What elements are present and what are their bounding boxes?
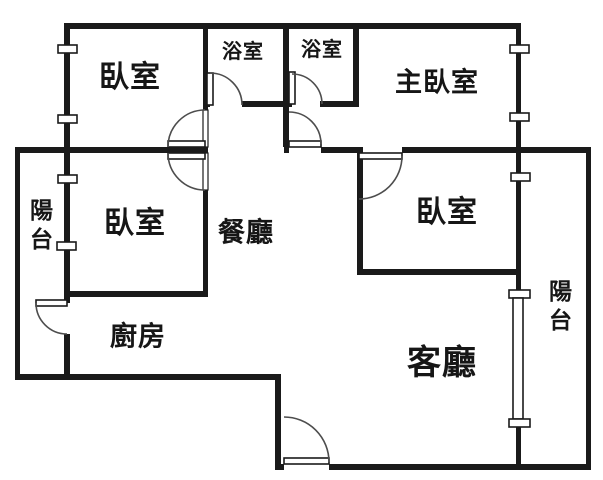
- wall-bottom-b: [329, 464, 591, 470]
- door-leaf-master-bedroom: [289, 141, 321, 147]
- floor-plan-drawing: [0, 0, 603, 480]
- door-arc-entrance: [284, 417, 329, 462]
- window-marker: [57, 242, 76, 250]
- wall-left-mid-lower: [64, 334, 70, 380]
- wall-main-mid-c: [402, 147, 591, 153]
- door-arc-master-bedroom: [289, 112, 321, 144]
- room-label-master-bedroom: 主臥室: [395, 70, 479, 97]
- wall-top: [65, 23, 521, 29]
- wall-bedroom3-bottom: [357, 269, 521, 275]
- wall-main-mid-a: [284, 147, 289, 153]
- wall-bottom-a: [275, 464, 284, 470]
- door-leaf-bathroom-left: [207, 73, 213, 105]
- door-leaf-entrance: [284, 458, 329, 464]
- wall-left-upper: [64, 23, 70, 153]
- room-label-bedroom-mid-left: 臥室: [104, 209, 166, 239]
- doors: [36, 72, 402, 464]
- room-label-balcony-right: 陽台: [547, 279, 570, 337]
- room-label-dining-room: 餐廳: [218, 220, 274, 247]
- room-label-balcony-left: 陽台: [28, 198, 51, 256]
- wall-kitchen-bottom: [15, 374, 281, 380]
- wall-bathroom2-east: [353, 23, 359, 107]
- door-arc-kitchen-balcony: [36, 303, 67, 334]
- wall-step: [275, 374, 281, 470]
- window-marker: [510, 113, 529, 121]
- wall-bathroom1-bottom-b: [242, 101, 289, 107]
- window-marker: [58, 45, 77, 53]
- wall-bathroom-divider: [283, 23, 289, 147]
- room-label-living-room: 客廳: [407, 346, 477, 380]
- floor-plan: 臥室 浴室 浴室 主臥室 臥室 餐廳 臥室 廚房 客廳 陽台 陽台: [0, 0, 603, 480]
- wall-main-mid-b: [321, 147, 359, 153]
- window-marker: [58, 175, 77, 183]
- door-leaf-bathroom-right: [289, 72, 295, 104]
- room-label-bedroom-top-left: 臥室: [99, 63, 161, 93]
- room-label-bedroom-right: 臥室: [416, 198, 478, 228]
- door-leaf-bedroom-mid-left: [168, 153, 205, 159]
- wall-divider-left: [15, 147, 208, 153]
- door-leaf-bedroom-top-left: [168, 141, 205, 147]
- wall-bedroom3-west: [357, 147, 363, 274]
- window-marker: [511, 173, 530, 181]
- window-marker: [510, 45, 529, 53]
- wall-bedroom2-bottom: [64, 291, 208, 297]
- door-arc-bathroom-right: [292, 74, 322, 104]
- door-arc-bathroom-left: [210, 73, 242, 105]
- window-sill-marker: [509, 419, 530, 427]
- window-marker: [58, 115, 77, 123]
- door-leaf-kitchen-balcony: [36, 300, 67, 306]
- door-arc-bedroom-right: [359, 156, 402, 199]
- wall-bedroom2-east-lower: [203, 190, 208, 297]
- window-sill-marker: [509, 290, 530, 298]
- room-label-bathroom-right: 浴室: [301, 40, 343, 60]
- room-label-kitchen: 廚房: [110, 324, 166, 351]
- room-label-bathroom-left: 浴室: [222, 42, 264, 62]
- door-leaf-bedroom-right: [359, 153, 402, 159]
- sliding-door: [513, 298, 523, 419]
- wall-balcony-left-outer: [15, 147, 20, 380]
- wall-balcony-right-outer: [586, 147, 591, 470]
